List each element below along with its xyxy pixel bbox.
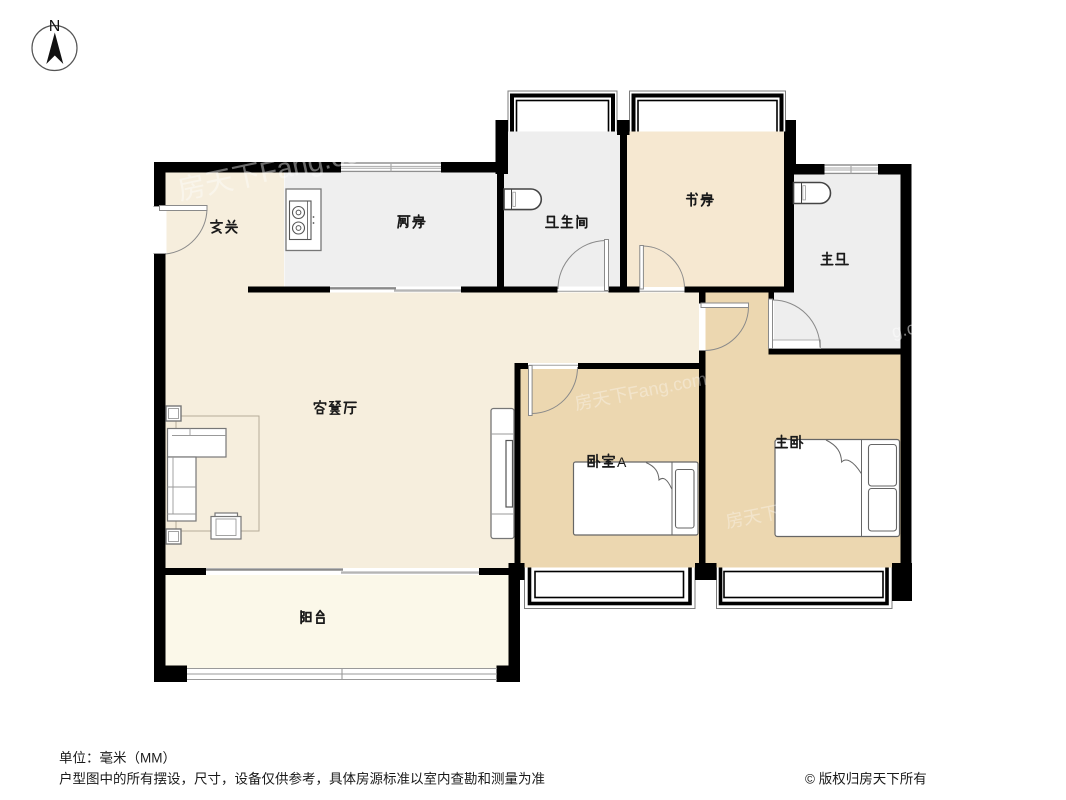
svg-text:N: N [49, 18, 61, 35]
svg-text:户型图中的所有摆设，尺寸，设备仅供参考，具体房源标准以室内查: 户型图中的所有摆设，尺寸，设备仅供参考，具体房源标准以室内查勘和测量为准 [59, 771, 545, 787]
svg-text:© 版权归房天下所有: © 版权归房天下所有 [805, 771, 927, 787]
svg-text:A: A [617, 454, 627, 470]
svg-text:单位：毫米（MM）: 单位：毫米（MM） [59, 750, 176, 766]
